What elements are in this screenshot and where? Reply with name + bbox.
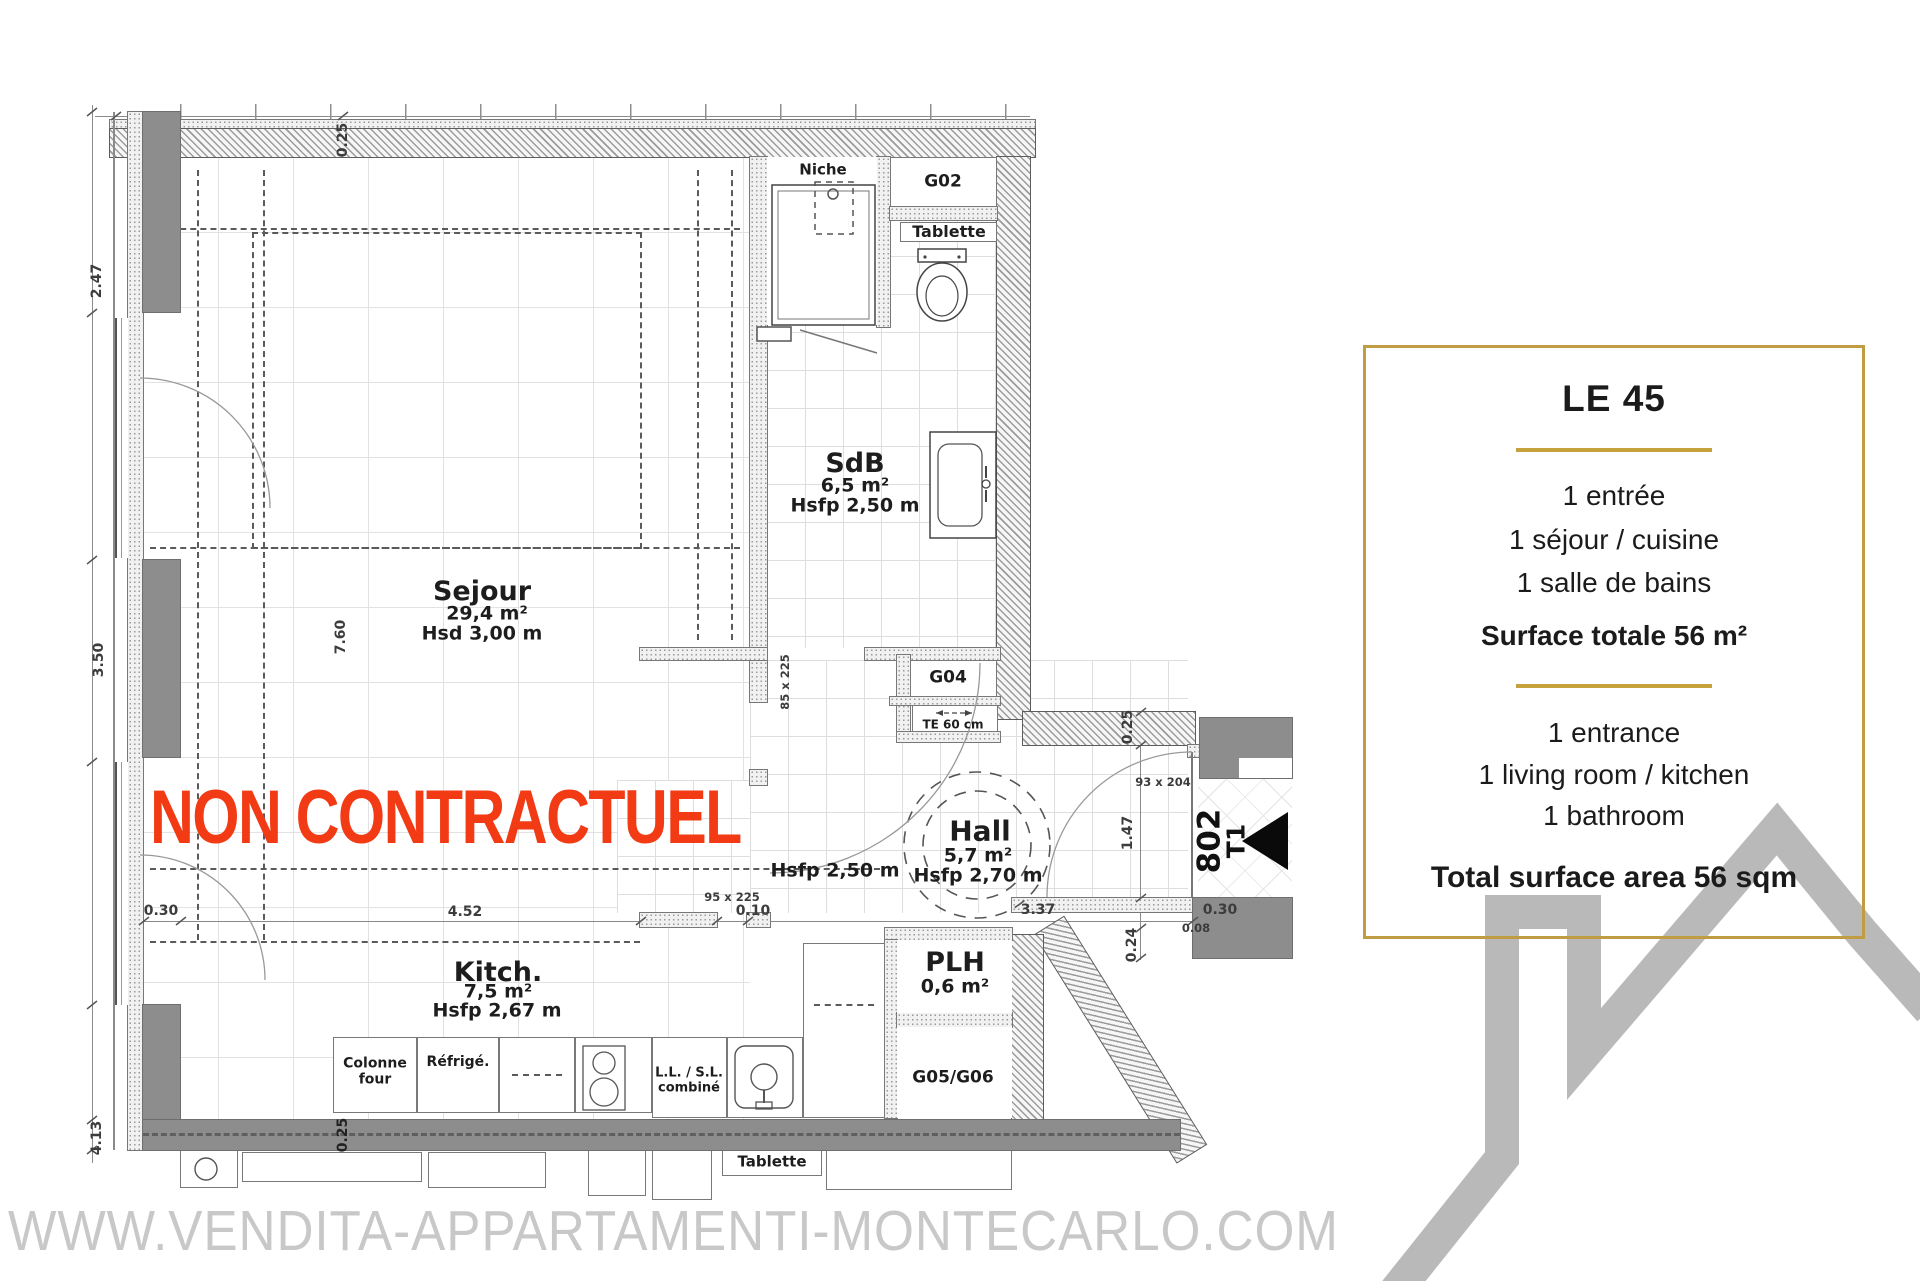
lower-unit-fixture: [826, 1150, 1012, 1190]
wall-right-lower: [1012, 935, 1043, 1150]
label-plh: PLH: [925, 948, 985, 978]
dim-door-93: 93 x 204: [1135, 775, 1190, 789]
partition-niche: [877, 157, 890, 327]
label-te: TE 60 cm: [922, 718, 983, 731]
panel-en-item-2: 1 living room / kitchen: [1366, 759, 1862, 791]
lower-unit-fixture: [180, 1150, 238, 1188]
panel-en-total: Total surface area 56 sqm: [1366, 861, 1862, 895]
dim-right-top: 0.25: [1120, 710, 1136, 745]
label-g05: G05/G06: [912, 1068, 993, 1087]
label-tablette-top: Tablette: [912, 223, 986, 241]
dim-left-3: 4.13: [89, 1121, 105, 1156]
panel-en-item-1: 1 entrance: [1366, 717, 1862, 749]
label-kitchen-height: Hsfp 2,67 m: [433, 1000, 562, 1021]
kitchen-cooktop-box: [575, 1037, 652, 1113]
label-fridge: Réfrigé.: [427, 1055, 490, 1071]
wall-plh-left: [885, 940, 897, 1118]
partition-under-g02: [890, 207, 997, 220]
lower-unit-fixture: [428, 1152, 546, 1188]
door-post: [1188, 745, 1200, 757]
dropped-ceiling-outline: [252, 232, 642, 549]
dashed-line: [150, 941, 640, 943]
lower-unit-fixture: [242, 1152, 422, 1182]
panel-fr-total: Surface totale 56 m²: [1366, 620, 1862, 652]
lower-unit-fixture: [588, 1150, 646, 1196]
panel-fr-item-1: 1 entrée: [1366, 480, 1862, 512]
dim-line-right: [1140, 712, 1141, 960]
dashed-line: [697, 170, 699, 640]
wall-top-insulation: [110, 120, 1035, 129]
divider: [1516, 684, 1712, 688]
dim-010: 0.10: [736, 903, 771, 919]
disclaimer-watermark: NON CONTRACTUEL: [150, 774, 741, 861]
label-hall: Hall: [949, 815, 1011, 846]
window-glazing: [115, 762, 128, 1005]
pillar: [143, 112, 180, 312]
partition-corridor-stub: [640, 648, 767, 660]
label-g02: G02: [924, 172, 962, 191]
dim-hall-w: 3.37: [1021, 902, 1056, 918]
dim-left-1: 2.47: [89, 264, 105, 299]
wall-right-mid: [1023, 712, 1195, 745]
panel-fr-item-2: 1 séjour / cuisine: [1366, 524, 1862, 556]
dim-left-door: 0.30: [144, 903, 179, 919]
unit-number: 802: [1195, 809, 1224, 874]
kitchen-counter-box: [499, 1037, 575, 1113]
unit-type: T1: [1225, 809, 1249, 874]
website-watermark: WWW.VENDITA-APPARTAMENTI-MONTECARLO.COM: [8, 1198, 1339, 1264]
wall-left-insulation: [128, 112, 143, 1150]
divider: [1516, 448, 1712, 452]
panel-fr-item-3: 1 salle de bains: [1366, 567, 1862, 599]
partition-sdb-hall: [865, 648, 1000, 660]
partition-sejour-sdb: [750, 157, 767, 702]
label-sejour-height: Hsd 3,00 m: [422, 623, 543, 644]
dim-030-right: 0.30: [1203, 902, 1238, 918]
wall-right-upper: [997, 157, 1030, 719]
dim-024: 0.24: [1124, 928, 1140, 963]
label-entry-height: Hsfp 2,50 m: [771, 860, 900, 881]
wall-band-bottom: [143, 1120, 1180, 1150]
label-niche: Niche: [799, 162, 846, 179]
kitchen-fridge: [417, 1037, 499, 1113]
dim-hall-h: 1.47: [1120, 816, 1136, 851]
label-washer: L.L. / S.L. combiné: [655, 1066, 723, 1095]
dim-kitchen-len: 4.52: [448, 904, 483, 920]
label-plh-area: 0,6 m²: [921, 976, 989, 997]
wall-entry-bottom: [640, 913, 717, 927]
wall-top: [110, 129, 1035, 157]
label-unit-ref: 802 T1: [1195, 809, 1248, 874]
dim-top: 0.25: [335, 123, 351, 158]
partition-te-bottom: [897, 732, 1000, 742]
panel-en-item-3: 1 bathroom: [1366, 800, 1862, 832]
label-g04: G04: [929, 668, 967, 687]
pillar: [143, 560, 180, 757]
dim-door-85: 85 x 225: [778, 654, 792, 709]
dim-band: 0.25: [335, 1118, 351, 1153]
kitchen-tall-unit: [803, 943, 885, 1118]
dim-left-2: 3.50: [91, 643, 107, 678]
info-panel: LE 45 1 entrée 1 séjour / cuisine 1 sall…: [1363, 345, 1865, 939]
niche-area: [767, 157, 877, 325]
partition-post: [750, 770, 767, 785]
wall-plh-g05: [897, 1013, 1012, 1027]
dashed-line: [150, 228, 740, 230]
window-glazing: [115, 318, 128, 558]
page: Niche G02 Tablette Sejour 29,4 m² Hsd 3,…: [0, 0, 1920, 1281]
wall-plh-top: [885, 928, 1012, 940]
label-tablette-bottom: Tablette: [738, 1154, 807, 1171]
dim-008: 0.08: [1182, 921, 1210, 935]
pillar-notch: [1239, 758, 1292, 778]
dim-door-95: 95 x 225: [704, 890, 759, 904]
dashed-line: [731, 170, 733, 640]
partition-g04-te: [890, 697, 1000, 705]
partition-g04-left: [897, 655, 910, 737]
kitchen-sink-box: [727, 1037, 803, 1118]
panel-title: LE 45: [1366, 378, 1862, 420]
label-oven: Colonne four: [343, 1056, 407, 1087]
label-sdb-height: Hsfp 2,50 m: [791, 495, 920, 516]
label-hall-height: Hsfp 2,70 m: [914, 865, 1043, 886]
dim-sejour-len: 7.60: [333, 620, 349, 655]
lower-unit-fixture: [652, 1150, 712, 1200]
